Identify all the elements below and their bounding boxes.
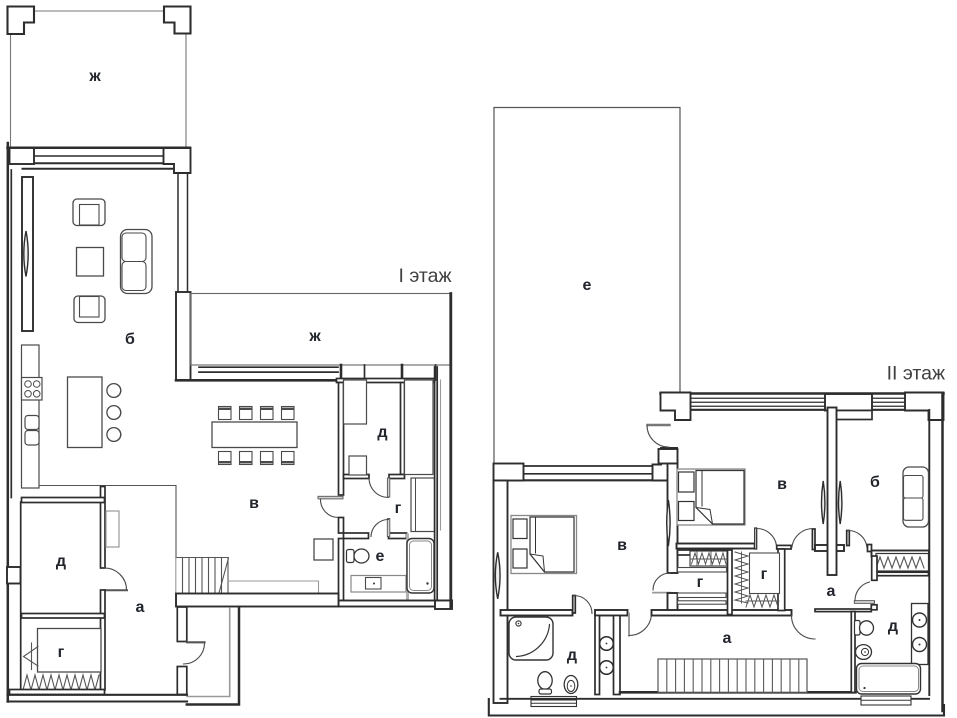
svg-text:д: д xyxy=(56,553,66,570)
svg-text:г: г xyxy=(58,644,65,661)
svg-text:ж: ж xyxy=(308,328,321,345)
svg-text:е: е xyxy=(376,548,385,565)
svg-text:а: а xyxy=(723,630,732,647)
svg-text:д: д xyxy=(888,618,898,635)
svg-text:г: г xyxy=(697,574,704,591)
svg-text:в: в xyxy=(777,476,787,493)
svg-text:б: б xyxy=(125,331,135,348)
svg-text:ж: ж xyxy=(88,68,101,85)
svg-text:а: а xyxy=(136,599,145,616)
svg-text:I этаж: I этаж xyxy=(399,265,452,287)
svg-text:е: е xyxy=(583,277,592,294)
svg-text:д: д xyxy=(567,647,577,664)
svg-text:б: б xyxy=(870,474,880,491)
svg-text:г: г xyxy=(761,566,768,583)
svg-text:а: а xyxy=(827,583,836,600)
svg-text:в: в xyxy=(617,537,627,554)
svg-text:в: в xyxy=(249,495,259,512)
svg-text:II этаж: II этаж xyxy=(887,363,945,385)
svg-text:г: г xyxy=(395,500,402,517)
svg-text:д: д xyxy=(377,424,387,441)
